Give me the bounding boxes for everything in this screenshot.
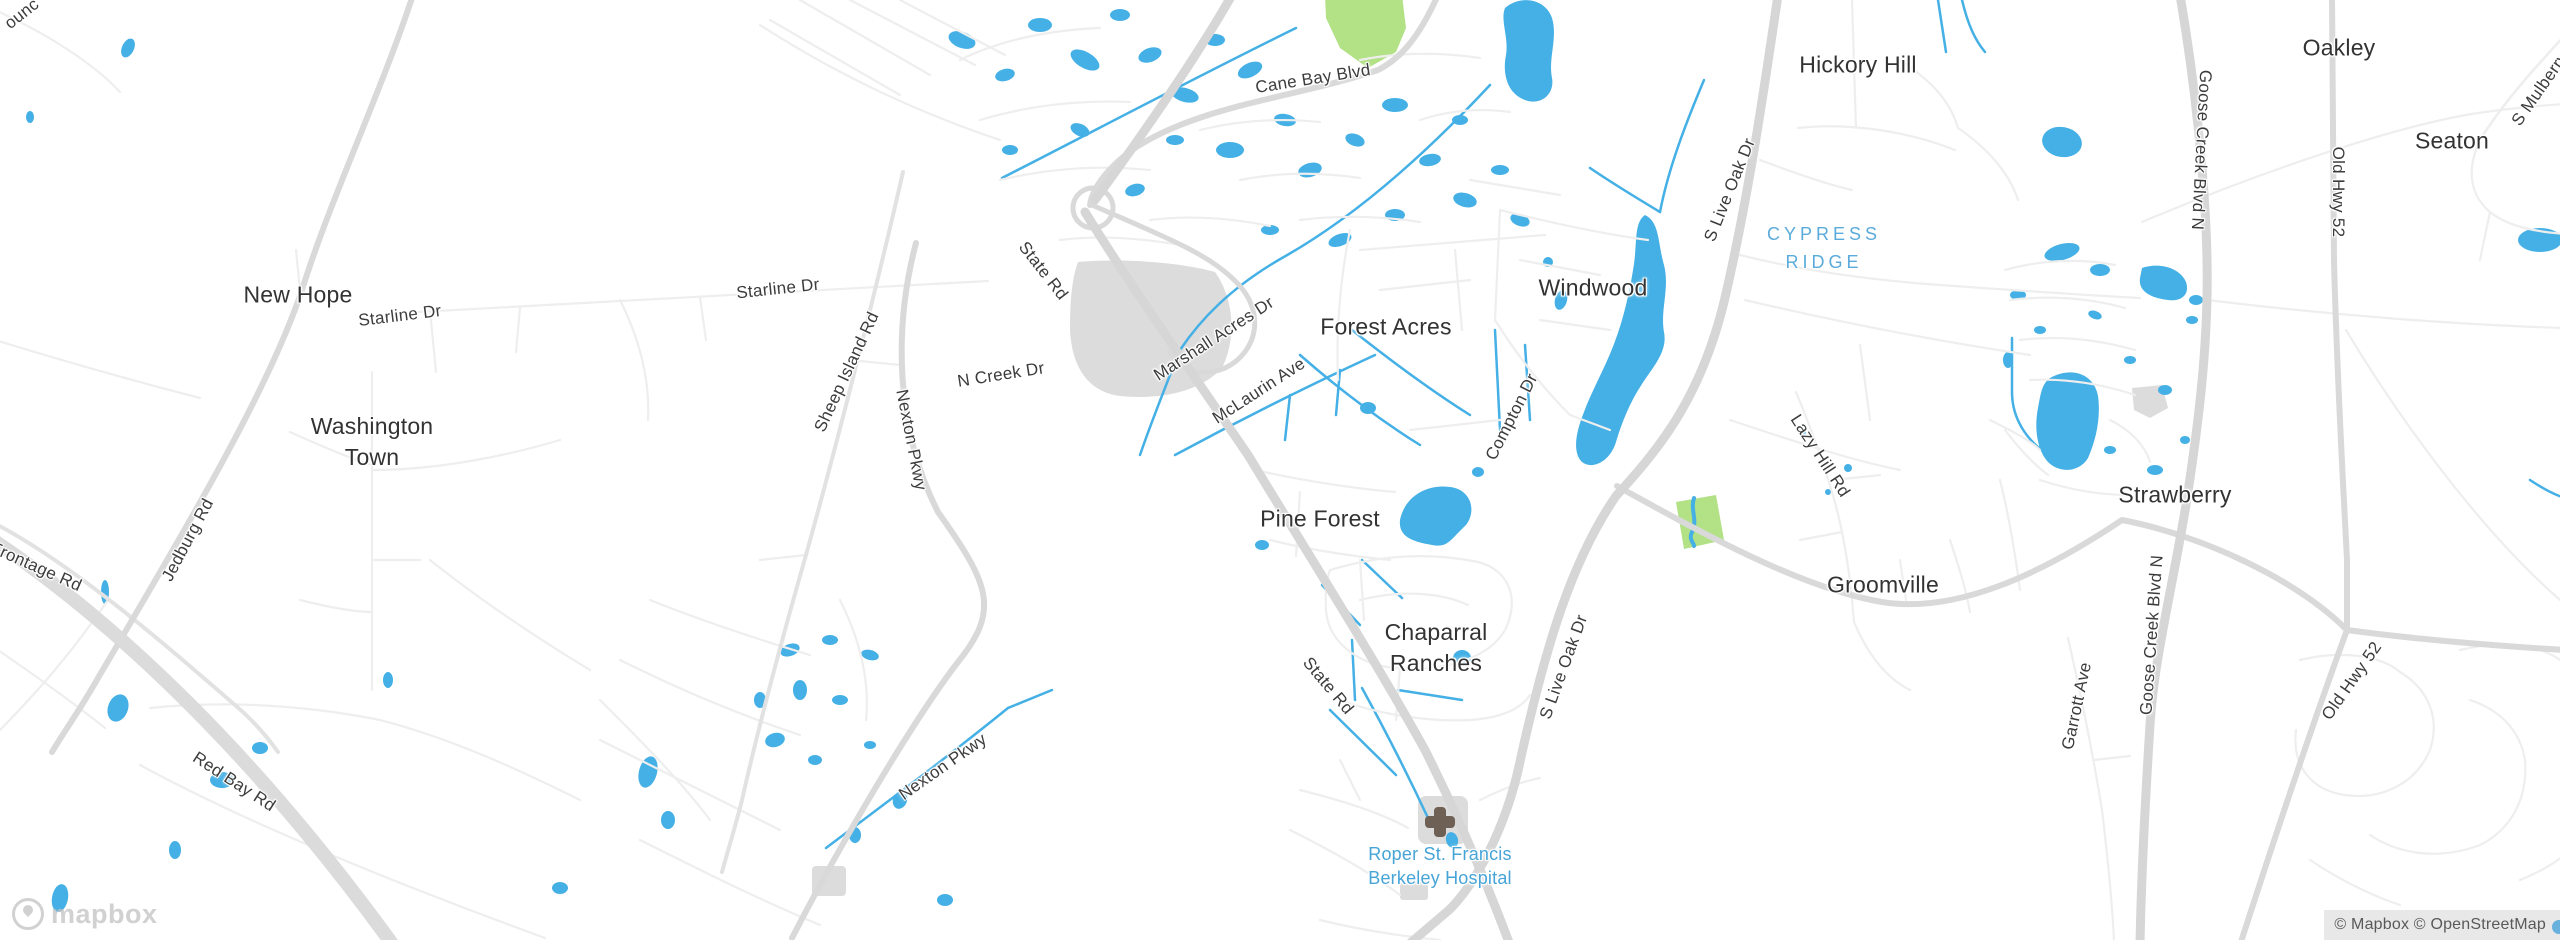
canal xyxy=(1938,0,1946,52)
street xyxy=(0,10,120,92)
road-old-hwy-52-branch xyxy=(2347,630,2560,650)
road-frontage-rd xyxy=(0,522,278,752)
street-network xyxy=(0,0,2560,940)
street xyxy=(290,372,560,690)
street-garrott-ave xyxy=(2068,638,2130,940)
pond xyxy=(661,811,675,829)
pond xyxy=(2180,436,2190,444)
pond xyxy=(169,841,181,859)
attribution-text[interactable]: © Mapbox © OpenStreetMap xyxy=(2334,916,2546,934)
pond xyxy=(2158,385,2172,395)
pond xyxy=(937,894,953,906)
built-area-hospital-annex xyxy=(1400,880,1428,900)
street-s-mulberry xyxy=(2480,35,2560,140)
pond xyxy=(26,111,34,123)
street xyxy=(760,0,1005,140)
pond xyxy=(822,635,838,645)
pond xyxy=(1297,160,1324,180)
pond xyxy=(1452,190,1479,210)
canal xyxy=(1525,345,1530,420)
pond xyxy=(2186,316,2198,324)
canal xyxy=(1362,560,1402,598)
pond xyxy=(1110,9,1130,21)
pond xyxy=(1382,98,1408,112)
mapbox-logo[interactable]: mapbox xyxy=(12,898,158,930)
pond xyxy=(118,36,137,59)
pond-strawberry-mid xyxy=(2140,266,2187,301)
hospital-cross-icon xyxy=(1425,807,1455,837)
pond-cane-bay-large xyxy=(1503,0,1554,102)
pond xyxy=(383,672,393,688)
canal xyxy=(1352,640,1355,700)
mapbox-pin-icon xyxy=(12,898,44,930)
pond-pine-forest xyxy=(1400,487,1472,546)
canal xyxy=(826,690,1052,848)
pond xyxy=(1844,464,1852,472)
pond xyxy=(1216,142,1244,158)
pond xyxy=(764,731,787,750)
primary-roads xyxy=(1085,0,2207,940)
canal xyxy=(1330,710,1396,775)
street xyxy=(960,28,1510,245)
street xyxy=(2207,300,2560,600)
canal xyxy=(1962,0,1985,52)
pond xyxy=(2104,446,2116,454)
road-groomville xyxy=(1617,486,2347,630)
pond xyxy=(832,695,848,705)
pond xyxy=(1255,540,1269,550)
pond xyxy=(1798,428,1806,436)
pond xyxy=(1124,182,1146,199)
street xyxy=(296,250,706,420)
attribution-bar: © Mapbox © OpenStreetMap xyxy=(2324,910,2560,940)
pond xyxy=(1553,289,1570,311)
pond xyxy=(2090,264,2110,276)
pond xyxy=(1028,18,1052,32)
street-lazy-hill-rd xyxy=(1796,392,1910,690)
mapbox-logo-text: mapbox xyxy=(51,899,158,930)
pond-hickory-hill xyxy=(2040,124,2085,160)
pond xyxy=(2034,326,2046,334)
lake-windwood xyxy=(1576,215,1666,465)
pond xyxy=(210,772,234,788)
pond xyxy=(1166,135,1184,145)
pond xyxy=(1235,58,1264,82)
pond xyxy=(552,882,568,894)
canal xyxy=(1398,690,1462,700)
street xyxy=(1730,300,2040,470)
pond xyxy=(1825,489,1831,495)
pond xyxy=(252,742,268,754)
secondary-roads xyxy=(52,0,2560,940)
pond xyxy=(808,755,822,765)
built-area-cane-bay-commercial xyxy=(1070,260,1231,397)
road-jedburg-rd xyxy=(52,0,413,752)
street xyxy=(0,340,200,398)
street xyxy=(430,560,710,820)
road-sheep-island-rd xyxy=(722,172,903,872)
improve-this-map-link-fragment[interactable] xyxy=(2552,920,2560,934)
canal xyxy=(2530,480,2560,498)
pond xyxy=(864,741,876,749)
canal xyxy=(1660,80,1704,212)
built-areas xyxy=(812,260,2168,900)
canal xyxy=(1495,330,1500,430)
pond xyxy=(1472,467,1484,477)
pond xyxy=(793,680,807,700)
pond xyxy=(1136,44,1163,65)
pond xyxy=(994,67,1016,84)
canal xyxy=(1590,168,1660,212)
street xyxy=(0,600,580,938)
pond xyxy=(1360,402,1376,414)
pond xyxy=(1344,131,1367,149)
road-nexton-pkwy xyxy=(792,243,984,938)
street xyxy=(2295,645,2560,905)
pond xyxy=(104,691,132,724)
lake-east xyxy=(2036,372,2099,469)
pond xyxy=(1067,45,1103,75)
water-bodies xyxy=(26,0,2560,913)
canal xyxy=(1285,395,1290,440)
street xyxy=(1900,480,2020,612)
pond xyxy=(2189,295,2203,305)
map-canvas[interactable]: New HopeWashingtonTownForest AcresWindwo… xyxy=(0,0,2560,940)
pond xyxy=(2087,309,2103,321)
pond xyxy=(2124,356,2136,364)
pond xyxy=(1002,145,1018,155)
pond xyxy=(1491,165,1509,175)
road-old-hwy-52 xyxy=(2240,0,2347,940)
street xyxy=(1338,230,1546,430)
pond xyxy=(2147,465,2163,475)
map-graphics xyxy=(0,0,2560,940)
minor-roads xyxy=(0,172,903,872)
